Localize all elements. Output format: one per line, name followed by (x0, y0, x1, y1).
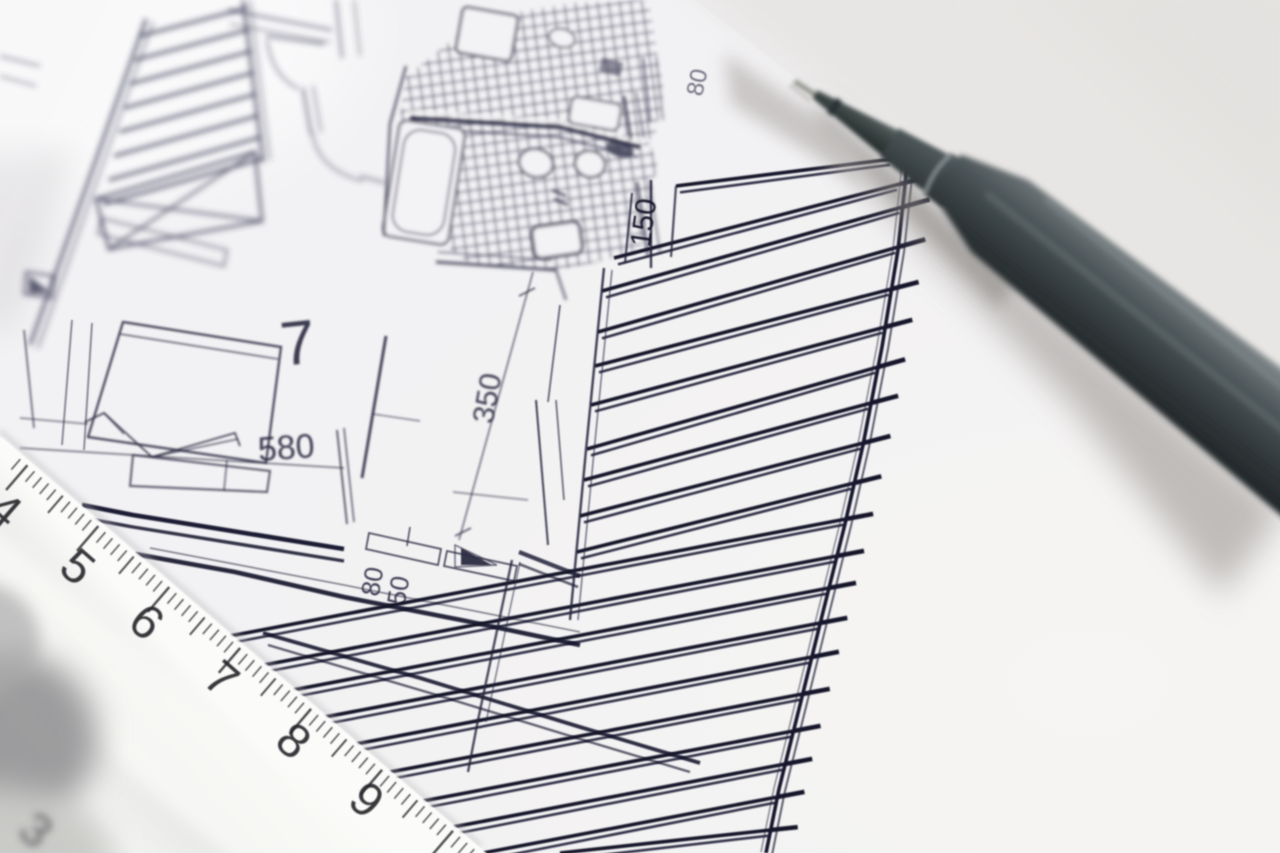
svg-text:580: 580 (257, 427, 316, 469)
svg-text:80: 80 (682, 67, 714, 99)
svg-text:150: 150 (625, 197, 663, 249)
svg-text:7: 7 (277, 307, 319, 379)
